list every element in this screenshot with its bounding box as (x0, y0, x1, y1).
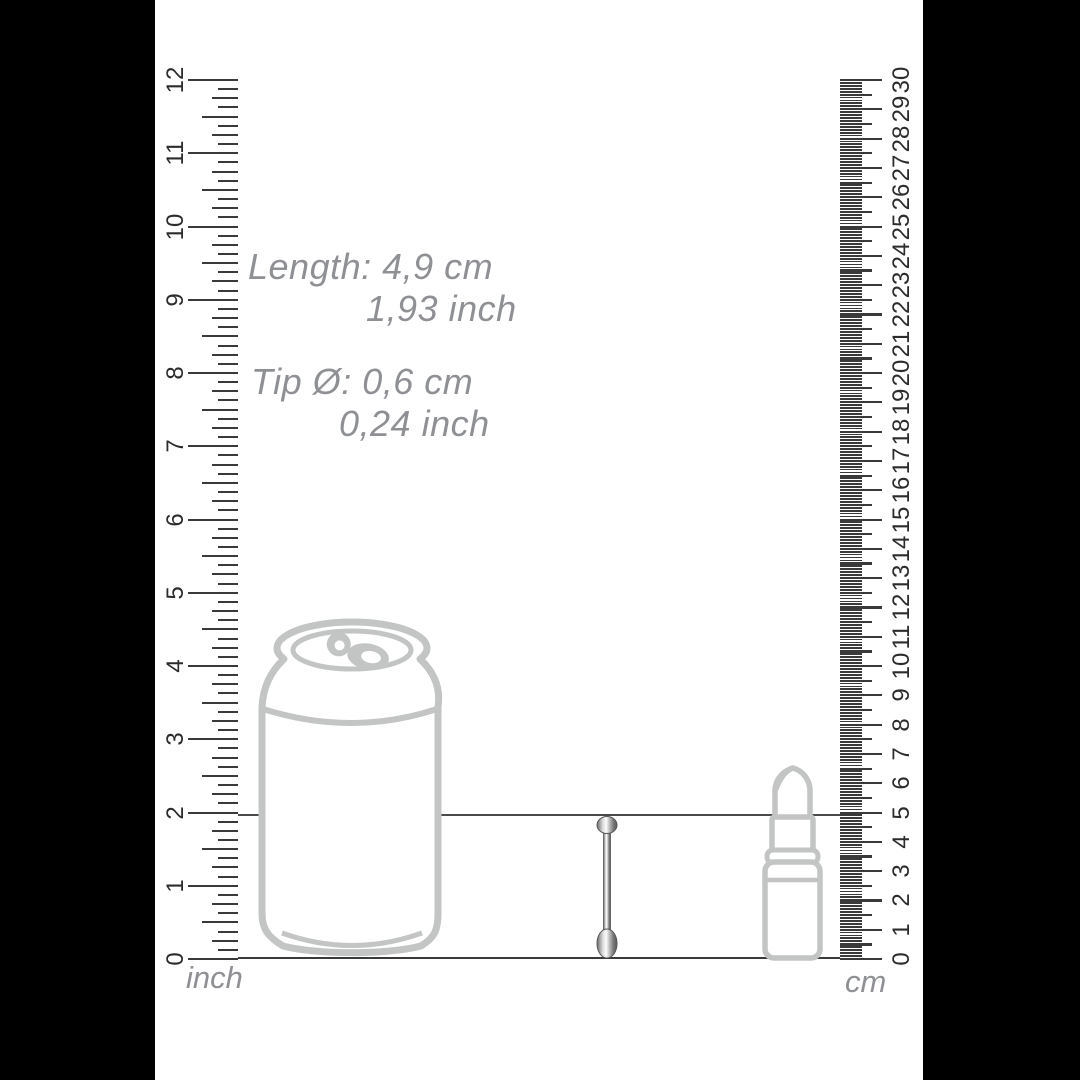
ruler-tick (218, 216, 238, 218)
ruler-tick (840, 246, 862, 248)
ruler-number: 30 (890, 67, 914, 94)
ruler-tick (840, 419, 862, 421)
ruler-tick (840, 894, 862, 896)
ruler-tick (218, 491, 238, 493)
ruler-tick (840, 375, 862, 377)
ruler-number: 13 (890, 565, 914, 592)
ruler-number: 1 (164, 879, 188, 892)
ruler-tick (840, 340, 862, 342)
ruler-tick (840, 656, 862, 658)
ruler-number: 20 (890, 360, 914, 387)
lipstick-icon (755, 755, 835, 965)
ruler-tick (840, 817, 862, 819)
ruler-number: 1 (890, 923, 914, 936)
tip-diameter-inch-annotation: 0,24 inch (339, 406, 490, 442)
ruler-tick (840, 674, 862, 676)
ruler-tick (218, 876, 238, 878)
ruler-tick (840, 712, 862, 714)
ruler-tick (840, 586, 862, 588)
ruler-tick (840, 243, 862, 245)
ruler-tick (840, 261, 862, 263)
ruler-tick (840, 313, 882, 315)
ruler-tick (202, 775, 238, 777)
ruler-tick (840, 360, 862, 362)
ruler-tick (840, 750, 862, 752)
ruler-tick (840, 466, 862, 468)
ruler-tick (840, 384, 862, 386)
ruler-tick (840, 164, 862, 166)
ruler-tick (840, 501, 862, 503)
ruler-tick (218, 601, 238, 603)
ruler-tick (840, 691, 862, 693)
ruler-tick (840, 803, 862, 805)
ruler-number: 3 (164, 733, 188, 746)
ruler-tick (840, 146, 862, 148)
right-letterbox-bar (923, 0, 1080, 1080)
ruler-tick (840, 507, 862, 509)
ruler-tick (840, 858, 862, 860)
ruler-tick (840, 823, 862, 825)
ruler-tick (218, 345, 238, 347)
ruler-tick (840, 316, 862, 318)
ruler-tick (840, 908, 862, 910)
ruler-tick (840, 310, 862, 312)
ruler-number: 16 (890, 477, 914, 504)
ruler-number: 17 (890, 448, 914, 475)
ruler-tick (212, 244, 238, 246)
ruler-tick (840, 603, 862, 605)
ruler-tick (840, 170, 862, 172)
ruler-tick (840, 809, 862, 811)
ruler-tick (218, 143, 238, 145)
ruler-tick (840, 653, 862, 655)
ruler-tick (212, 537, 238, 539)
ruler-number: 7 (890, 747, 914, 760)
ruler-tick (218, 436, 238, 438)
ruler-tick (218, 583, 238, 585)
ruler-tick (840, 785, 862, 787)
ruler-tick (840, 184, 862, 186)
rod-top-ball (597, 817, 617, 834)
ruler-tick (840, 220, 862, 222)
ruler-tick (840, 794, 862, 796)
ruler-number: 15 (890, 506, 914, 533)
ruler-tick (840, 694, 882, 696)
ruler-tick (218, 326, 238, 328)
ruler-tick (202, 848, 238, 850)
ruler-tick (840, 530, 862, 532)
ruler-number: 25 (890, 213, 914, 240)
ruler-number: 6 (164, 513, 188, 526)
ruler-tick (218, 88, 238, 90)
ruler-tick (840, 249, 862, 251)
ruler-tick (840, 126, 862, 128)
ruler-tick (840, 410, 862, 412)
ruler-tick (212, 683, 238, 685)
ruler-tick (218, 509, 238, 511)
ruler-tick (840, 390, 862, 392)
ruler-tick (840, 102, 862, 104)
ruler-tick (840, 583, 862, 585)
ruler-number: 18 (890, 418, 914, 445)
ruler-tick (840, 571, 862, 573)
ruler-tick (212, 207, 238, 209)
lipstick-bullet-outline (775, 768, 810, 818)
ruler-tick (840, 609, 862, 611)
ruler-tick (840, 727, 862, 729)
ruler-tick (840, 665, 882, 667)
ruler-number: 26 (890, 184, 914, 211)
ruler-tick (218, 308, 238, 310)
ruler-tick (840, 800, 862, 802)
ruler-tick (840, 557, 862, 559)
ruler-tick (840, 647, 862, 649)
ruler-tick (212, 573, 238, 575)
ruler-tick (840, 697, 862, 699)
ruler-number: 2 (890, 894, 914, 907)
ruler-tick (840, 480, 862, 482)
soda-can-icon (250, 615, 450, 965)
ruler-tick (840, 835, 862, 837)
ruler-tick (840, 636, 882, 638)
ruler-tick (840, 492, 862, 494)
ruler-tick (840, 853, 862, 855)
ruler-tick (188, 226, 238, 228)
ruler-tick (840, 797, 872, 799)
ruler-tick (840, 759, 862, 761)
ruler-tick (840, 152, 872, 154)
ruler-tick (840, 305, 862, 307)
ruler-tick (840, 120, 862, 122)
ruler-tick (188, 372, 238, 374)
ruler-number: 2 (164, 806, 188, 819)
ruler-tick (840, 870, 882, 872)
ruler-tick (840, 923, 862, 925)
ruler-number: 11 (164, 141, 188, 166)
ruler-tick (218, 381, 238, 383)
ruler-tick (840, 677, 862, 679)
ruler-tick (840, 554, 862, 556)
ruler-tick (840, 448, 862, 450)
inch-unit-label: inch (186, 962, 243, 993)
ruler-tick (840, 814, 862, 816)
ruler-tick (840, 325, 862, 327)
ruler-tick (212, 793, 238, 795)
ruler-tick (840, 524, 862, 526)
ruler-tick (840, 738, 872, 740)
ruler-tick (218, 125, 238, 127)
ruler-tick (188, 519, 238, 521)
ruler-tick (218, 619, 238, 621)
ruler-tick (212, 280, 238, 282)
ruler-tick (840, 486, 862, 488)
ruler-tick (840, 372, 882, 374)
ruler-tick (840, 932, 862, 934)
can-body-outline (262, 622, 439, 953)
ruler-number: 7 (164, 440, 188, 453)
ruler-tick (218, 894, 238, 896)
ruler-tick (840, 659, 862, 661)
ruler-tick (840, 463, 862, 465)
ruler-tick (840, 768, 872, 770)
ruler-tick (212, 500, 238, 502)
ruler-tick (840, 879, 862, 881)
ruler-tick (840, 639, 862, 641)
ruler-tick (840, 378, 862, 380)
ruler-number: 5 (164, 586, 188, 599)
ruler-tick (188, 812, 238, 814)
ruler-tick (840, 366, 862, 368)
ruler-tick (840, 431, 882, 433)
ruler-number: 23 (890, 272, 914, 299)
ruler-tick (840, 765, 862, 767)
ruler-tick (840, 436, 862, 438)
ruler-tick (218, 546, 238, 548)
ruler-tick (840, 536, 862, 538)
ruler-tick (840, 149, 862, 151)
ruler-tick (840, 756, 862, 758)
ruler-tick (202, 116, 238, 118)
ruler-tick (840, 469, 862, 471)
ruler-tick (840, 132, 862, 134)
lipstick-tube-outline (765, 862, 820, 958)
ruler-tick (218, 564, 238, 566)
ruler-tick (840, 495, 862, 497)
ruler-tick (218, 638, 238, 640)
ruler-tick (840, 926, 862, 928)
ruler-tick (840, 703, 862, 705)
ruler-tick (840, 223, 862, 225)
ruler-tick (840, 264, 862, 266)
ruler-tick (840, 434, 862, 436)
ruler-tick (188, 445, 238, 447)
ruler-tick (840, 627, 862, 629)
ruler-tick (840, 832, 862, 834)
ruler-number: 5 (890, 806, 914, 819)
ruler-tick (840, 847, 862, 849)
ruler-tick (840, 214, 862, 216)
ruler-tick (840, 838, 862, 840)
ruler-tick (840, 143, 862, 145)
ruler-tick (840, 770, 862, 772)
ruler-tick (840, 226, 882, 228)
ruler-tick (218, 473, 238, 475)
ruler-tick (840, 946, 862, 948)
ruler-tick (840, 187, 862, 189)
ruler-tick (840, 82, 862, 84)
ruler-tick (840, 592, 872, 594)
ruler-tick (840, 105, 862, 107)
ruler-tick (840, 161, 862, 163)
ruler-tick (840, 680, 872, 682)
cm-unit-label: cm (845, 966, 886, 997)
ruler-tick (840, 357, 872, 359)
ruler-tick (202, 189, 238, 191)
rod-bottom-egg-tip (597, 929, 617, 958)
ruler-tick (840, 425, 862, 427)
ruler-tick (840, 574, 862, 576)
ruler-tick (840, 589, 862, 591)
ruler-tick (840, 100, 862, 102)
ruler-tick (840, 732, 862, 734)
ruler-tick (840, 176, 862, 178)
ruler-tick (840, 287, 862, 289)
ruler-tick (840, 208, 862, 210)
ruler-tick (840, 855, 872, 857)
ruler-tick (840, 422, 862, 424)
ruler-tick (840, 920, 862, 922)
ruler-tick (840, 296, 862, 298)
ruler-tick (840, 138, 882, 140)
ruler-tick (212, 830, 238, 832)
ruler-tick (212, 940, 238, 942)
ruler-tick (840, 820, 862, 822)
ruler-tick (840, 319, 862, 321)
ruler-tick (840, 442, 862, 444)
ruler-tick (840, 560, 862, 562)
ruler-number: 9 (890, 689, 914, 702)
ruler-tick (840, 293, 862, 295)
ruler-tick (840, 167, 882, 169)
ruler-tick (840, 721, 862, 723)
ruler-tick (840, 267, 862, 269)
ruler-tick (840, 190, 862, 192)
ruler-tick (840, 929, 882, 931)
ruler-tick (218, 656, 238, 658)
ruler-tick (202, 555, 238, 557)
ruler-tick (840, 630, 862, 632)
ruler-tick (840, 779, 862, 781)
ruler-number: 24 (890, 242, 914, 269)
ruler-tick (840, 937, 862, 939)
ruler-tick (218, 161, 238, 163)
ruler-tick (840, 173, 862, 175)
ruler-tick (840, 85, 862, 87)
ruler-tick (840, 272, 862, 274)
ruler-tick (840, 454, 862, 456)
ruler-tick (840, 577, 882, 579)
ruler-tick (218, 363, 238, 365)
ruler-tick (840, 548, 882, 550)
ruler-tick (840, 706, 862, 708)
ruler-tick (840, 601, 862, 603)
ruler-tick (212, 903, 238, 905)
ruler-tick (218, 235, 238, 237)
ruler-tick (840, 281, 862, 283)
ruler-tick (840, 202, 862, 204)
ruler-tick (840, 850, 862, 852)
ruler-tick (840, 182, 872, 184)
ruler-tick (840, 117, 862, 119)
ruler-tick (840, 252, 862, 254)
ruler-tick (218, 692, 238, 694)
ruler-tick (218, 802, 238, 804)
ruler-number: 21 (890, 330, 914, 357)
ruler-tick (840, 387, 872, 389)
ruler-tick (840, 111, 862, 113)
ruler-tick (218, 821, 238, 823)
ruler-tick (840, 891, 862, 893)
ruler-tick (218, 766, 238, 768)
ruler-tick (840, 275, 862, 277)
ruler-number: 19 (890, 389, 914, 416)
ruler-tick (840, 867, 862, 869)
ruler-tick (212, 97, 238, 99)
ruler-tick (218, 674, 238, 676)
ruler-tick (840, 519, 882, 521)
ruler-tick (840, 568, 862, 570)
ruler-tick (212, 427, 238, 429)
ruler-tick (840, 284, 882, 286)
ruler-tick (840, 269, 872, 271)
ruler-number: 12 (164, 67, 188, 94)
ruler-tick (840, 876, 862, 878)
ruler-tick (840, 776, 862, 778)
ruler-tick (212, 464, 238, 466)
ruler-tick (840, 861, 862, 863)
ruler-tick (840, 902, 862, 904)
ruler-tick (840, 565, 862, 567)
rod-stem (604, 830, 611, 933)
ruler-tick (218, 839, 238, 841)
ruler-tick (840, 618, 862, 620)
ruler-tick (840, 258, 862, 260)
ruler-tick (840, 228, 862, 230)
ruler-tick (840, 351, 862, 353)
ruler-tick (840, 885, 872, 887)
ruler-tick (212, 390, 238, 392)
length-cm-annotation: Length: 4,9 cm (248, 249, 493, 285)
ruler-tick (840, 158, 862, 160)
ruler-tick (218, 253, 238, 255)
ruler-tick (840, 773, 862, 775)
ruler-number: 4 (164, 659, 188, 672)
ruler-tick (840, 686, 862, 688)
ruler-tick (218, 528, 238, 530)
ruler-number: 8 (890, 718, 914, 731)
ruler-tick (840, 393, 862, 395)
length-inch-annotation: 1,93 inch (366, 291, 517, 327)
tip-diameter-cm-annotation: Tip Ø: 0,6 cm (251, 364, 473, 400)
ruler-tick (202, 262, 238, 264)
ruler-tick (840, 718, 862, 720)
ruler-tick (840, 135, 862, 137)
ruler-tick (840, 290, 862, 292)
ruler-tick (840, 888, 862, 890)
ruler-tick (840, 231, 862, 233)
ruler-tick (840, 205, 862, 207)
ruler-tick (840, 155, 862, 157)
ruler-tick (840, 337, 862, 339)
ruler-tick (840, 715, 862, 717)
ruler-tick (840, 949, 862, 951)
ruler-tick (202, 409, 238, 411)
ruler-tick (840, 806, 862, 808)
ruler-tick (840, 513, 862, 515)
ruler-tick (840, 826, 872, 828)
ruler-number: 11 (890, 624, 914, 649)
ruler-tick (840, 179, 862, 181)
ruler-tick (840, 404, 862, 406)
ruler-tick (840, 97, 862, 99)
ruler-tick (840, 709, 872, 711)
ruler-tick (212, 647, 238, 649)
ruler-tick (840, 489, 882, 491)
ruler-tick (188, 885, 238, 887)
ruler-tick (840, 460, 882, 462)
ruler-tick (840, 621, 872, 623)
ruler-tick (840, 302, 862, 304)
